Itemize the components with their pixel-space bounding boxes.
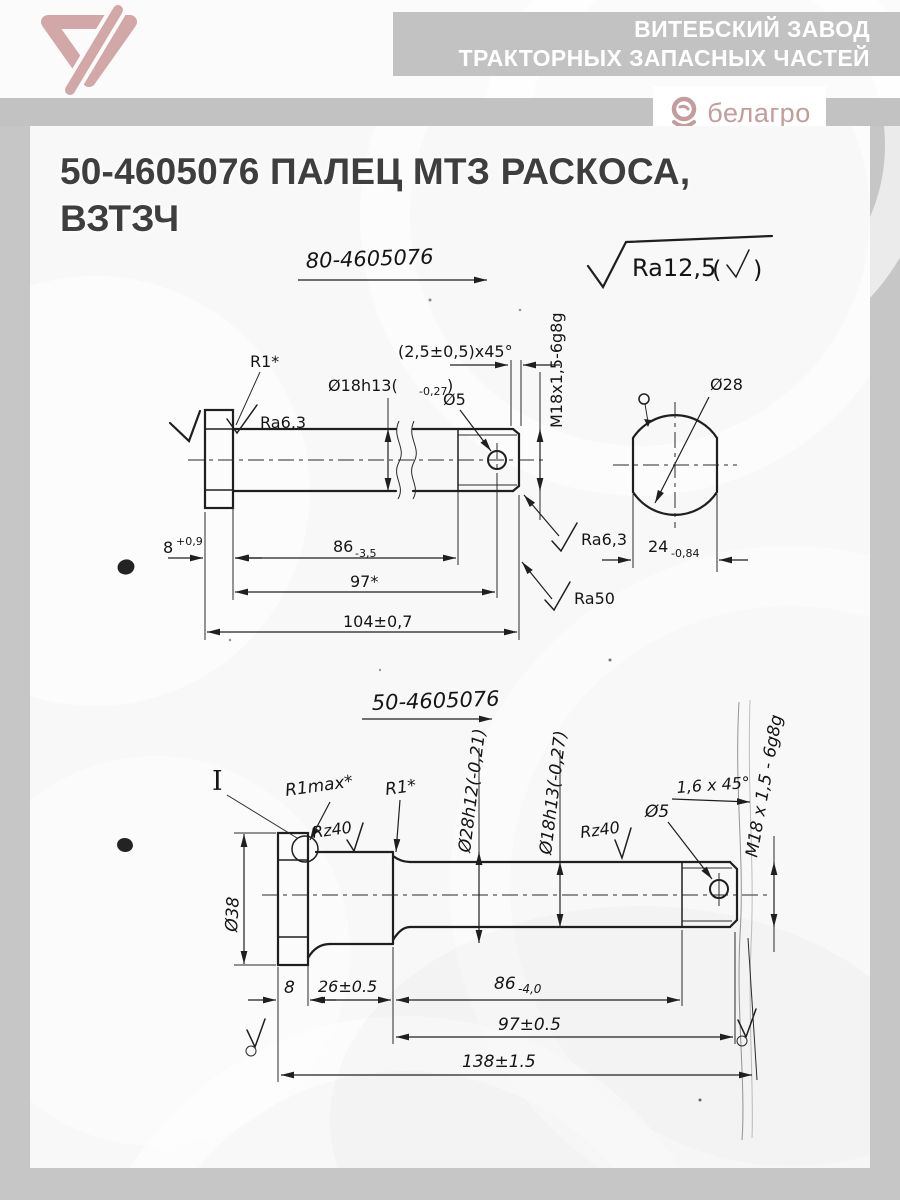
d1-label-d18: Ø18h13( [328,376,398,395]
d2-label-d5: Ø5 [644,802,669,822]
d1-dim-97: 97* [350,572,378,591]
d1-dim-8-tol: +0,9 [176,535,203,548]
page: ВИТЕБСКИЙ ЗАВОД ТРАКТОРНЫХ ЗАПАСНЫХ ЧАСТ… [0,0,900,1200]
d2-label-rz40-b: Rz40 [579,818,621,842]
d2-section-mark: I [212,766,223,797]
scan-fold-line [749,700,752,1138]
d1-paren-open: ( [712,256,721,284]
d2-label-r1max: R1max* [284,772,354,801]
d1-dim-24-tol: -0,84 [671,547,699,560]
d1-label-ra50: Ra50 [574,589,615,608]
d1-general-roughness: Ra12,5 [632,254,716,282]
d1-label-d5: Ø5 [443,390,466,409]
d1-dim-24: 24 [648,537,668,556]
d1-dim-104: 104±0,7 [343,612,412,631]
d1-label-m18: M18x1,5-6g8g [547,312,566,428]
d2-label-d28: Ø28h12(-0,21) [455,727,490,854]
d2-label-rz40-a: Rz40 [311,818,353,842]
d2-dim-26: 26±0.5 [318,977,377,996]
d2-dim-86-tol: -4,0 [518,982,542,996]
d1-paren-close: ) [753,256,762,284]
d2-dim-86: 86 [494,974,516,994]
d1-dim-86-tol: -3,5 [355,547,376,560]
d2-dim-8: 8 [284,978,295,998]
d1-dim-86: 86 [333,537,353,556]
d2-label-chamfer: 1,6 x 45° [676,773,751,797]
d2-label-d38: Ø38 [222,896,244,933]
d1-label-ra63-top: Ra6,3 [260,413,306,432]
d1-label-r1: R1* [250,352,279,371]
d1-label-chamfer: (2,5±0,5)x45° [398,342,513,361]
d1-dim-8: 8 [163,538,173,557]
drawing1-geometry [170,410,545,598]
drawing1: 80-4605076 Ra12,5 ( ) [163,236,772,640]
d1-label-d28: Ø28 [710,375,743,394]
drawing2: 50-4605076 [212,687,787,1140]
technical-drawings: 80-4605076 Ra12,5 ( ) [0,0,900,1200]
d2-dim-138: 138±1.5 [462,1052,536,1072]
d1-label-ra63-side: Ra6,3 [581,530,627,549]
d2-dim-97: 97±0.5 [498,1015,561,1035]
drawing2-geometry [262,700,770,1140]
d2-label-d18: Ø18h13(-0,27) [536,729,571,856]
d2-label-r1: R1* [384,776,418,800]
scan-fold-line [738,702,743,1140]
d2-part-number: 50-4605076 [371,687,500,715]
d1-part-number: 80-4605076 [305,245,434,273]
